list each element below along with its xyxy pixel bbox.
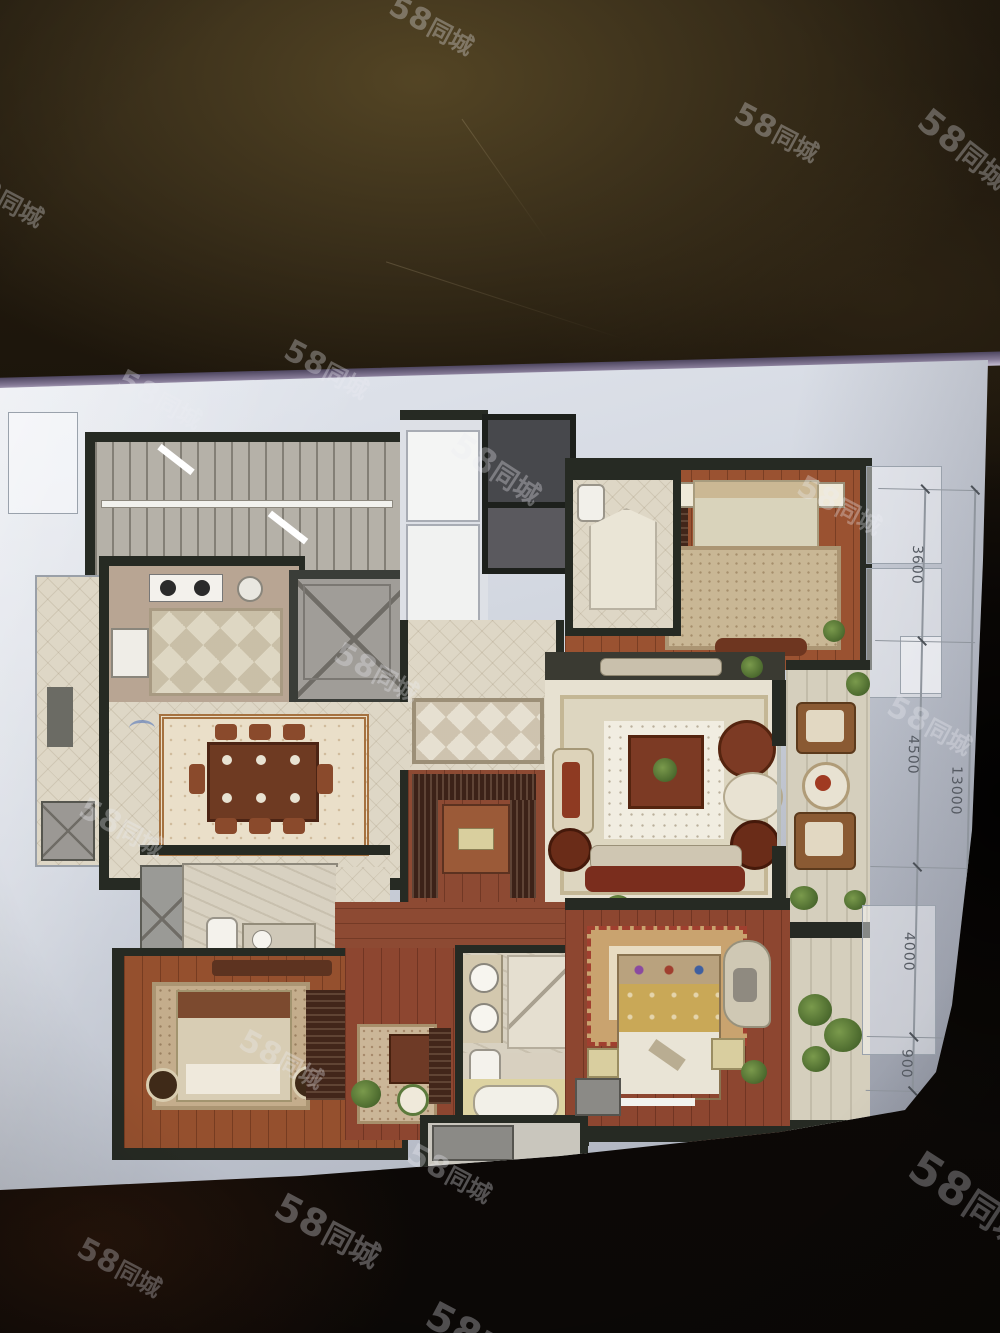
watermark-58tongcheng: 58同城 — [443, 425, 549, 513]
watermark-58tongcheng: 58同城 — [0, 160, 51, 235]
watermark-58tongcheng: 58同城 — [233, 1022, 331, 1097]
watermark-58tongcheng: 58同城 — [401, 1136, 499, 1211]
watermark-58tongcheng: 58同城 — [910, 100, 1000, 198]
watermark-58tongcheng: 58同城 — [267, 1184, 389, 1278]
watermark-58tongcheng: 58同城 — [418, 1292, 545, 1333]
watermark-58tongcheng: 58同城 — [791, 468, 889, 543]
watermark-58tongcheng: 58同城 — [111, 362, 209, 437]
watermark-58tongcheng: 58同城 — [728, 95, 826, 170]
watermark-58tongcheng: 58同城 — [899, 1140, 1000, 1260]
watermark-58tongcheng: 58同城 — [383, 0, 481, 63]
watermark-58tongcheng: 58同城 — [328, 635, 426, 710]
watermark-58tongcheng: 58同城 — [881, 688, 979, 763]
watermark-58tongcheng: 58同城 — [73, 790, 171, 865]
photo-of-floorplan-listing: 3600 4500 4000 900 13000 58同城58同城58同城58同… — [0, 0, 1000, 1333]
watermark-layer: 58同城58同城58同城58同城58同城58同城58同城58同城58同城58同城… — [0, 0, 1000, 1333]
watermark-58tongcheng: 58同城 — [71, 1230, 169, 1305]
watermark-58tongcheng: 58同城 — [278, 332, 376, 407]
